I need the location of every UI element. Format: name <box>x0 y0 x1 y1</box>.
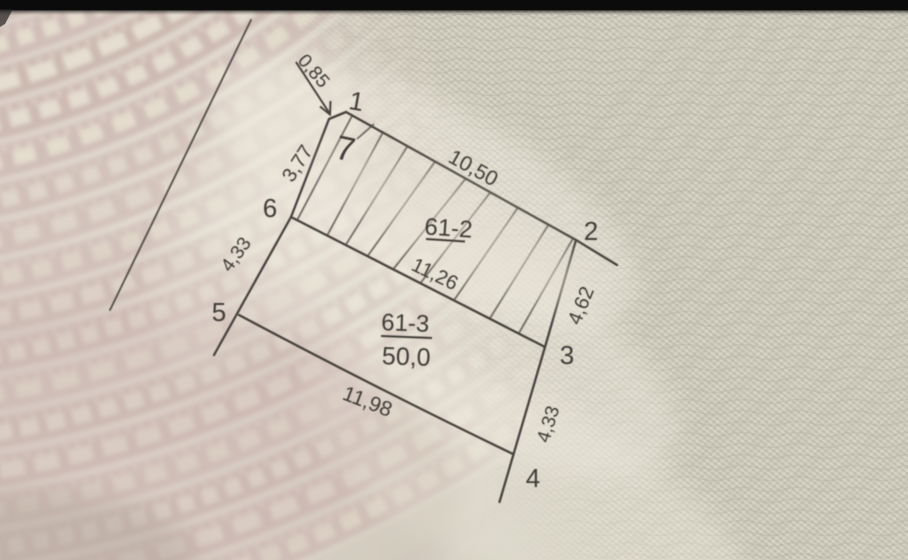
svg-text:6: 6 <box>263 193 277 223</box>
svg-text:3: 3 <box>560 340 574 370</box>
svg-text:2: 2 <box>584 216 598 246</box>
svg-text:61-3: 61-3 <box>381 309 430 338</box>
svg-text:4: 4 <box>526 463 540 493</box>
svg-text:50,0: 50,0 <box>381 342 431 372</box>
svg-text:5: 5 <box>212 297 226 327</box>
